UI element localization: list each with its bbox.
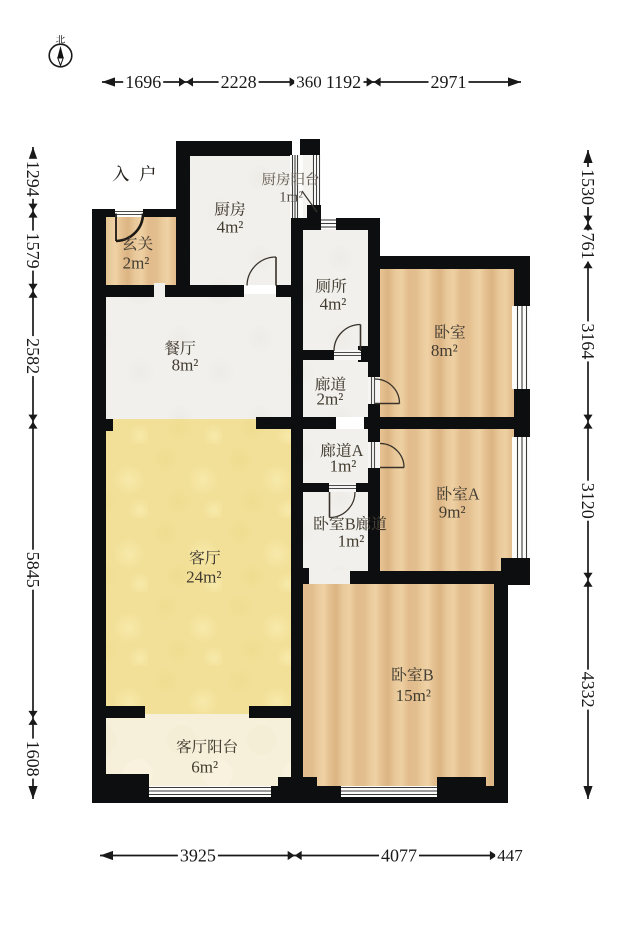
svg-text:1696: 1696 [125,72,161,92]
svg-text:B: B [345,514,356,533]
svg-text:4332: 4332 [578,672,598,708]
svg-text:1m²: 1m² [279,189,303,205]
svg-text:2228: 2228 [221,72,257,92]
svg-text:B: B [423,665,434,684]
svg-text:1192: 1192 [326,72,361,92]
svg-text:1294: 1294 [23,161,43,197]
svg-text:4077: 4077 [381,845,417,865]
svg-text:2582: 2582 [23,338,43,374]
svg-text:1579: 1579 [23,233,43,269]
svg-text:447: 447 [497,846,523,865]
svg-text:8m²: 8m² [431,341,458,360]
svg-text:1m²: 1m² [330,457,357,476]
svg-text:3120: 3120 [578,483,598,519]
svg-text:3925: 3925 [180,845,216,865]
svg-text:1608: 1608 [23,741,43,777]
svg-text:4m²: 4m² [217,218,244,237]
svg-text:761: 761 [578,233,598,260]
svg-text:2m²: 2m² [316,390,343,409]
svg-text:1m²: 1m² [338,532,365,551]
svg-text:8m²: 8m² [172,356,199,375]
svg-text:5845: 5845 [23,552,43,588]
svg-text:24m²: 24m² [186,568,221,587]
svg-text:9m²: 9m² [439,503,466,522]
svg-text:4m²: 4m² [320,295,347,314]
svg-text:6m²: 6m² [191,758,218,777]
svg-text:3164: 3164 [578,323,598,359]
svg-text:1530: 1530 [578,169,598,205]
svg-text:2971: 2971 [431,72,467,92]
svg-text:2m²: 2m² [123,254,150,273]
svg-text:360: 360 [296,73,322,92]
svg-text:A: A [468,485,480,504]
svg-text:15m²: 15m² [396,686,431,705]
